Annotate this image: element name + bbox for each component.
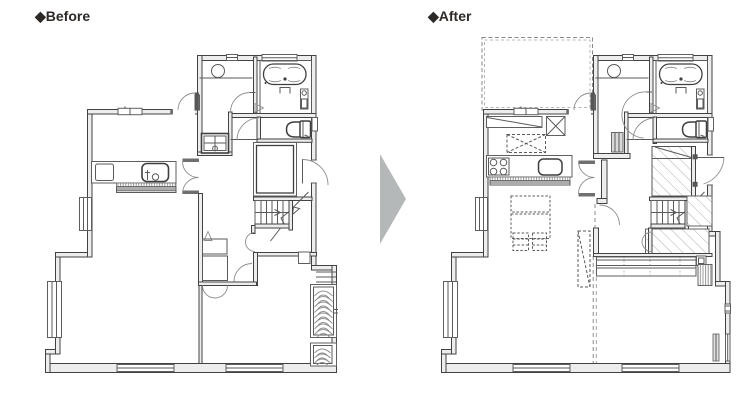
svg-text:◆Before: ◆Before (34, 8, 90, 24)
svg-text:◆After: ◆After (427, 8, 472, 24)
